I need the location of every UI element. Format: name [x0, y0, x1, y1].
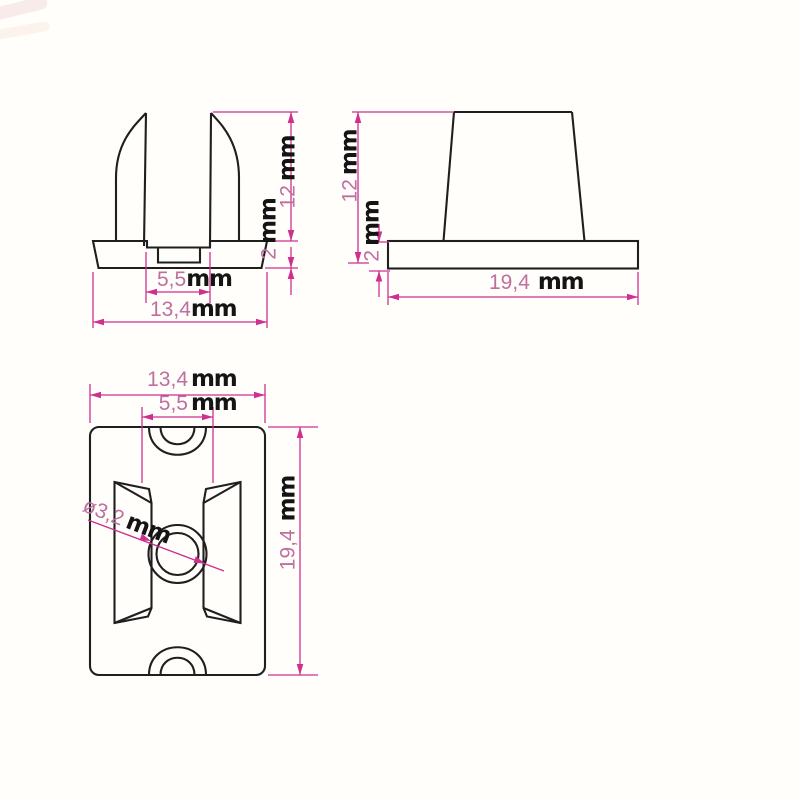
front-slot-width-label: 5,5mm [157, 268, 232, 291]
top-view-width-labels: 13,4mm 5,5mm [132, 368, 237, 416]
dimension-unit: mm [258, 198, 281, 244]
front-overall-width-label: 13,4mm [150, 298, 236, 321]
dimension-value: 2 [362, 250, 383, 262]
front-base-channel [158, 248, 200, 263]
dimension-value: 5,5 [157, 269, 186, 290]
drawing-page: 5,5mm 13,4mm 12mm 2mm 12mm 2mm 19,4mm 13… [0, 0, 800, 800]
top-view-outline [90, 427, 265, 675]
dimension-value: 2 [259, 248, 280, 260]
side-body-left [444, 112, 455, 241]
front-view-outline [93, 113, 267, 268]
right-slot [204, 482, 241, 623]
side-body-right [572, 112, 585, 241]
front-base-thickness-label: 2mm [258, 198, 281, 259]
side-view-outline [388, 112, 638, 269]
dimension-unit: mm [191, 368, 237, 391]
dimension-unit: mm [191, 392, 237, 415]
side-base-width-label: 19,4mm [489, 271, 583, 294]
dimension-unit: mm [538, 271, 584, 294]
top-view-body [90, 427, 265, 675]
dimension-value: 5,5 [132, 393, 188, 414]
bottom-notch-outer [149, 647, 206, 675]
dimension-value: 19,4 [278, 529, 299, 570]
dimension-value: 19,4 [489, 272, 530, 293]
prong-right-outer [211, 113, 239, 241]
dimension-unit: mm [339, 130, 362, 176]
dimension-unit: mm [277, 476, 300, 522]
dimension-unit: mm [361, 200, 384, 246]
dimension-value: 12 [340, 179, 361, 202]
bottom-notch-inner [161, 658, 195, 675]
prong-right-inner [210, 113, 211, 246]
side-height-label: 12mm [339, 130, 362, 203]
dimension-unit: mm [186, 268, 232, 291]
side-base [388, 241, 638, 269]
top-notch-inner [161, 427, 195, 444]
dimension-value: 13,4 [150, 299, 191, 320]
prong-left-inner [144, 113, 146, 246]
technical-drawing [0, 0, 800, 800]
top-length-label: 19,4mm [277, 476, 300, 570]
side-base-thickness-label: 2mm [361, 200, 384, 261]
left-slot [115, 482, 152, 623]
prong-left-outer [116, 113, 146, 241]
top-slot-width-label: 5,5mm [132, 392, 237, 416]
top-notch-outer [149, 427, 206, 455]
dimension-unit: mm [191, 298, 237, 321]
dimension-unit: mm [277, 136, 300, 182]
dimension-value: 13,4 [132, 369, 188, 390]
top-overall-width-label: 13,4mm [132, 368, 237, 392]
front-base [93, 241, 267, 268]
